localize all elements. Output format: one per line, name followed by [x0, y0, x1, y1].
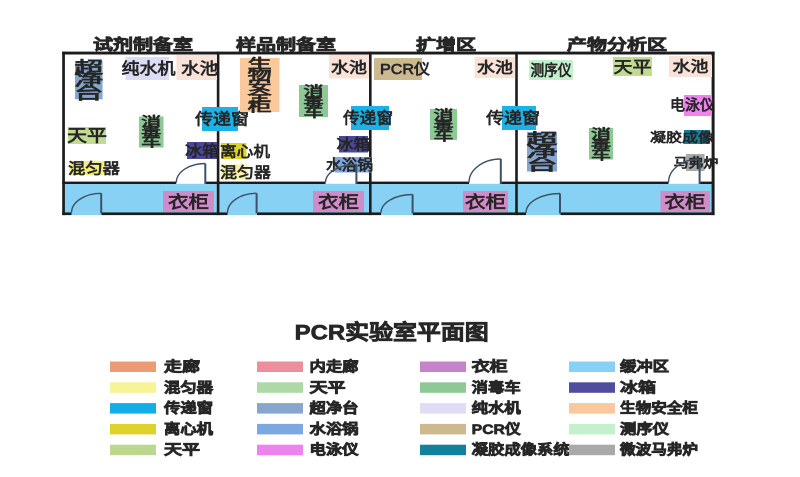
- svg-text:冰箱: 冰箱: [185, 143, 219, 160]
- svg-text:离心机: 离心机: [220, 144, 270, 161]
- svg-text:水池: 水池: [331, 60, 367, 77]
- svg-text:缓冲区: 缓冲区: [620, 359, 669, 375]
- svg-text:衣柜: 衣柜: [472, 359, 508, 375]
- svg-text:传递窗: 传递窗: [343, 110, 393, 128]
- svg-text:冰箱: 冰箱: [620, 379, 656, 395]
- svg-text:微波马弗炉: 微波马弗炉: [619, 442, 698, 458]
- svg-text:混匀器: 混匀器: [164, 379, 214, 395]
- svg-text:天平: 天平: [614, 60, 652, 77]
- svg-text:超净台: 超净台: [308, 400, 358, 416]
- svg-text:台: 台: [74, 84, 103, 103]
- svg-text:柜: 柜: [248, 100, 272, 115]
- svg-text:PCR实验室平面图: PCR实验室平面图: [295, 320, 489, 344]
- svg-text:扩增区: 扩增区: [416, 35, 476, 53]
- svg-text:水浴锅: 水浴锅: [310, 421, 359, 437]
- svg-text:离心机: 离心机: [164, 421, 213, 437]
- svg-text:PCR仪: PCR仪: [380, 61, 430, 78]
- svg-text:水池: 水池: [477, 60, 513, 77]
- svg-text:样品制备室: 样品制备室: [236, 35, 336, 53]
- svg-text:混匀器: 混匀器: [68, 161, 120, 178]
- svg-text:马弗炉: 马弗炉: [674, 156, 719, 171]
- svg-text:台: 台: [527, 157, 558, 174]
- svg-text:衣柜: 衣柜: [465, 193, 506, 212]
- svg-text:测序仪: 测序仪: [531, 62, 572, 80]
- svg-text:水池: 水池: [181, 60, 218, 78]
- svg-text:凝胶成像: 凝胶成像: [650, 130, 714, 145]
- svg-text:天平: 天平: [310, 379, 346, 395]
- svg-text:天平: 天平: [164, 442, 200, 458]
- svg-text:衣柜: 衣柜: [168, 193, 209, 212]
- svg-text:电泳仪: 电泳仪: [670, 97, 715, 114]
- svg-text:传递窗: 传递窗: [486, 110, 540, 128]
- svg-text:衣柜: 衣柜: [318, 193, 359, 212]
- svg-text:混匀器: 混匀器: [220, 165, 271, 182]
- svg-text:消毒车: 消毒车: [472, 379, 521, 395]
- svg-text:试剂制备室: 试剂制备室: [93, 35, 193, 53]
- svg-text:走廊: 走廊: [164, 359, 200, 375]
- svg-text:车: 车: [591, 148, 611, 163]
- svg-text:纯水机: 纯水机: [122, 60, 176, 78]
- svg-text:车: 车: [304, 105, 324, 120]
- svg-text:衣柜: 衣柜: [665, 193, 706, 212]
- svg-text:产物分析区: 产物分析区: [567, 35, 667, 53]
- svg-text:测序仪: 测序仪: [620, 421, 670, 437]
- svg-text:车: 车: [141, 134, 161, 150]
- svg-text:生物安全柜: 生物安全柜: [620, 400, 698, 416]
- svg-text:电泳仪: 电泳仪: [310, 442, 360, 458]
- svg-text:传递窗: 传递窗: [163, 400, 213, 416]
- svg-text:天平: 天平: [67, 127, 107, 146]
- svg-text:冰箱: 冰箱: [337, 137, 371, 154]
- svg-text:内走廊: 内走廊: [310, 359, 359, 375]
- svg-text:传递窗: 传递窗: [195, 111, 249, 129]
- svg-text:凝胶成像系统: 凝胶成像系统: [472, 442, 570, 458]
- svg-text:车: 车: [434, 129, 454, 144]
- svg-text:纯水机: 纯水机: [472, 400, 521, 416]
- svg-text:PCR仪: PCR仪: [472, 421, 522, 437]
- svg-text:水池: 水池: [673, 59, 709, 76]
